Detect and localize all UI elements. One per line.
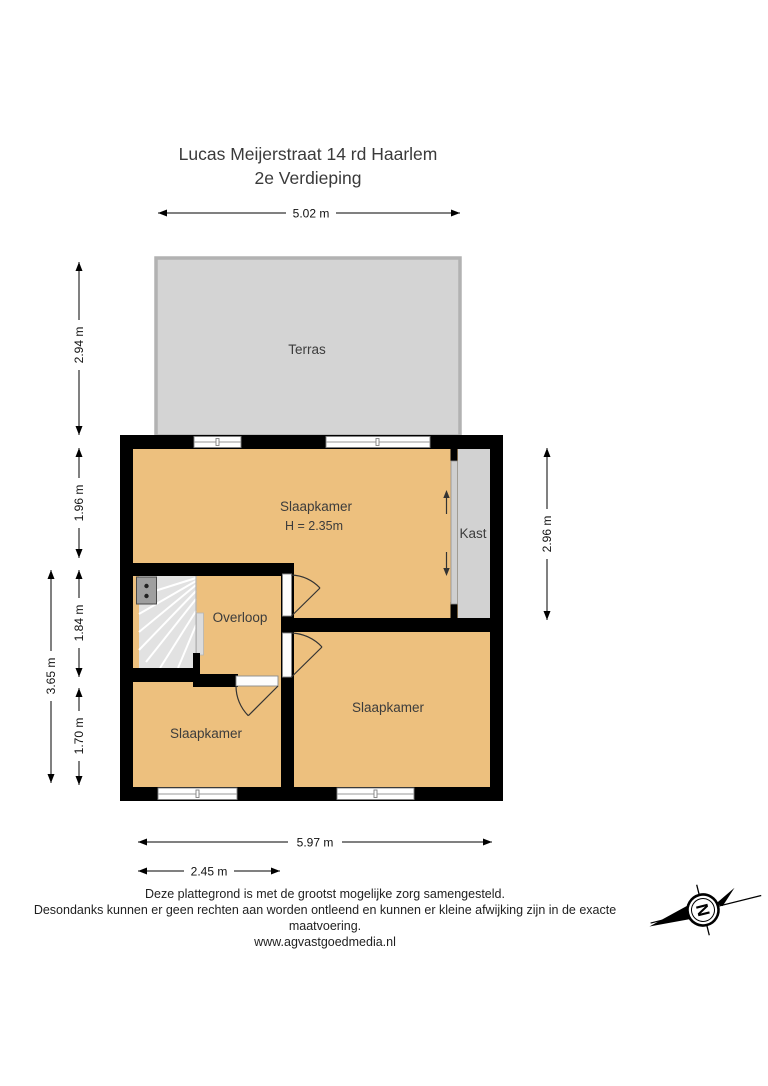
- dim-bottom-left-width-label: 2.45 m: [191, 865, 228, 879]
- dim-bedroom-top-depth: 1.96 m: [72, 448, 86, 558]
- dim-bedroom-left-depth-label: 1.70 m: [72, 718, 86, 755]
- wall-closet-stub-top: [451, 445, 458, 461]
- wall-top: [120, 435, 503, 449]
- dim-terrace-depth-label: 2.94 m: [72, 327, 86, 364]
- window-bottom-left: [158, 788, 237, 800]
- window-bottom-right: [337, 788, 414, 800]
- floorplan-page: Lucas Meijerstraat 14 rd Haarlem 2e Verd…: [0, 0, 768, 1086]
- label-terras: Terras: [288, 342, 326, 357]
- wall-landing-bottom: [193, 674, 238, 687]
- disclaimer-line-2: Desondanks kunnen er geen rechten aan wo…: [0, 902, 650, 934]
- dim-bottom-width-label: 5.97 m: [297, 836, 334, 850]
- dim-bottom-left-width: 2.45 m: [138, 865, 280, 879]
- dim-left-total-depth-label: 3.65 m: [44, 658, 58, 695]
- wall-bedrooms-divider: [281, 618, 490, 632]
- window-top-right: [326, 437, 430, 448]
- window-top-left: [194, 437, 241, 448]
- wall-left: [120, 435, 133, 801]
- disclaimer: Deze plattegrond is met de grootst mogel…: [0, 886, 650, 950]
- dim-terrace-depth: 2.94 m: [72, 262, 86, 435]
- stair-tread-edge: [197, 613, 204, 655]
- label-closet: Kast: [459, 526, 486, 541]
- label-bedroom-top: Slaapkamer: [280, 499, 353, 514]
- label-bedroom-right: Slaapkamer: [352, 700, 425, 715]
- wall-stairs-bottom: [120, 668, 200, 682]
- dim-bedroom-left-depth: 1.70 m: [72, 688, 86, 785]
- dim-top-width-label: 5.02 m: [293, 207, 330, 221]
- dim-bottom-width: 5.97 m: [138, 836, 492, 850]
- dim-closet-side-height-label: 2.96 m: [540, 516, 554, 553]
- compass: N: [642, 870, 767, 949]
- disclaimer-line-1: Deze plattegrond is met de grootst mogel…: [0, 886, 650, 902]
- dim-left-total-depth: 3.65 m: [44, 570, 58, 783]
- label-landing: Overloop: [213, 610, 268, 625]
- dim-landing-depth-label: 1.84 m: [72, 605, 86, 642]
- utility-box: [137, 577, 157, 604]
- disclaimer-website: www.agvastgoedmedia.nl: [0, 934, 650, 950]
- label-bedroom-left: Slaapkamer: [170, 726, 243, 741]
- wall-landing-top: [120, 563, 294, 576]
- wall-closet-stub-bottom: [451, 602, 458, 620]
- dim-top-width: 5.02 m: [158, 207, 460, 221]
- dim-closet-side-height: 2.96 m: [540, 448, 554, 620]
- dim-bedroom-top-depth-label: 1.96 m: [72, 485, 86, 522]
- dim-landing-depth: 1.84 m: [72, 570, 86, 677]
- wall-right: [490, 435, 503, 801]
- label-bedroom-top-height: H = 2.35m: [285, 519, 343, 533]
